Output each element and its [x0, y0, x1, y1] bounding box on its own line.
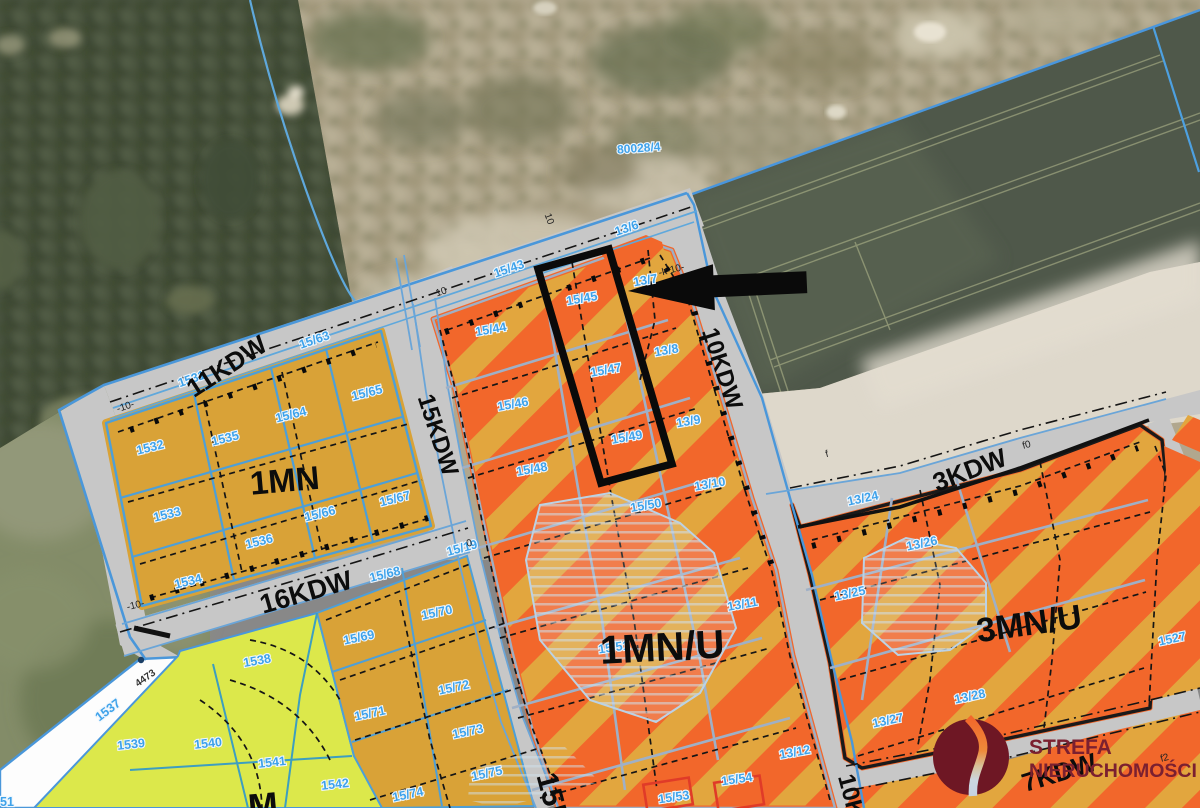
svg-text:M: M [246, 784, 279, 808]
svg-text:1540: 1540 [193, 735, 222, 752]
svg-text:1MN: 1MN [248, 459, 321, 502]
svg-text:STREFA: STREFA [1029, 736, 1112, 759]
svg-text:1MN/U: 1MN/U [599, 622, 726, 672]
svg-text:1539: 1539 [116, 736, 145, 753]
svg-text:1542: 1542 [320, 776, 349, 793]
svg-text:51: 51 [0, 795, 14, 808]
svg-text:1541: 1541 [257, 754, 286, 771]
svg-text:NIERUCHOMOŚCI: NIERUCHOMOŚCI [1029, 758, 1197, 782]
